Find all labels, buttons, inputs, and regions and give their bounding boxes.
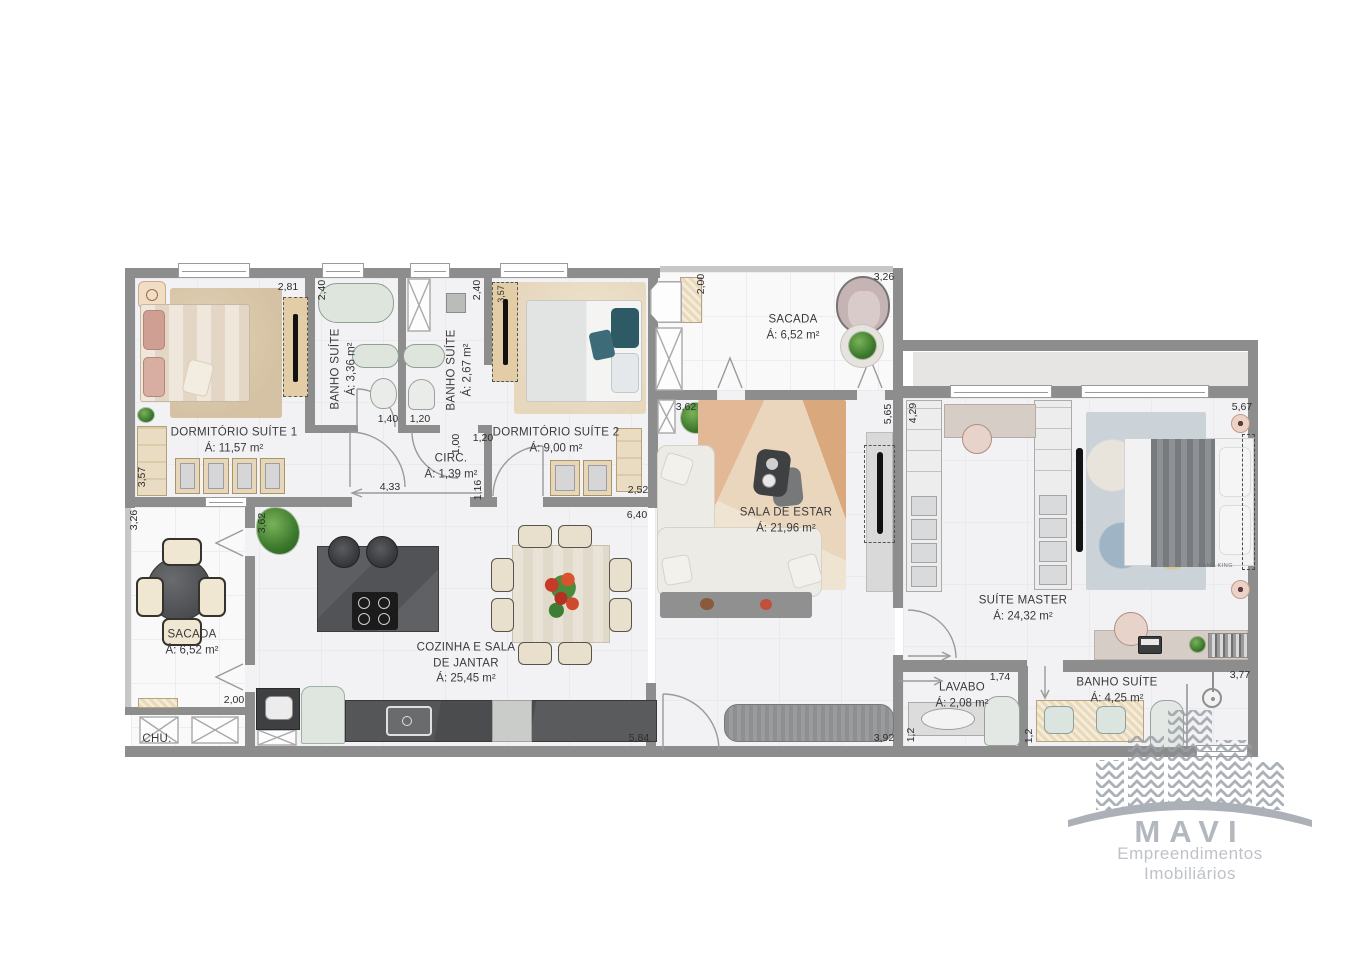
shower-icon	[446, 293, 466, 313]
room-area: Á: 21,96 m²	[740, 521, 833, 537]
sink-icon	[386, 706, 432, 736]
room-name: SACADA	[165, 627, 218, 643]
room-name: BANHO SUÍTE	[1076, 675, 1157, 691]
chair-icon	[198, 577, 226, 617]
dimension-label: 1,00	[450, 434, 462, 454]
room-area: Á: 6,52 m²	[766, 328, 819, 344]
dimension-label: 3,26	[128, 510, 140, 530]
bed-icon	[526, 300, 642, 402]
room-name: SUÍTE MASTER	[979, 593, 1068, 609]
plant-icon	[1190, 637, 1205, 652]
chair-icon	[962, 424, 992, 454]
room-name: SACADA	[766, 312, 819, 328]
burner	[358, 597, 370, 609]
dimension-label: 3,92	[874, 732, 894, 744]
wardrobe	[906, 400, 942, 592]
stool-icon	[366, 536, 398, 568]
stool-icon	[328, 536, 360, 568]
sofa-pillow	[661, 554, 693, 586]
wall-lamp-icon	[1231, 414, 1250, 433]
chair-icon	[491, 598, 514, 632]
bed-icon	[140, 304, 250, 402]
laptop-icon	[1138, 636, 1162, 654]
dimension-label: 2,40	[471, 280, 483, 300]
dimension-label: 1,40	[378, 413, 398, 425]
tv-icon	[503, 299, 508, 365]
brand-tagline: Empreendimentos Imobiliários	[1117, 844, 1262, 884]
room-area: Á: 9,00 m²	[493, 441, 620, 457]
room-label-banho1: BANHO SUÍTE Á: 3,36 m²	[328, 328, 359, 409]
crab-print	[700, 598, 714, 610]
tv-icon	[1076, 448, 1083, 552]
tub	[265, 696, 293, 720]
toilet-icon	[370, 378, 397, 409]
books-icon	[1208, 633, 1248, 658]
chair-icon	[162, 538, 202, 566]
tv-panel	[283, 297, 308, 397]
blanket	[1151, 439, 1215, 567]
throw-blanket	[181, 358, 214, 397]
dimension-label: 3,62	[256, 513, 268, 533]
pillow	[611, 353, 639, 393]
room-label-sacada-left: SACADA Á: 6,52 m²	[165, 627, 218, 658]
dresser	[175, 458, 285, 494]
laptop-screen	[1141, 639, 1159, 645]
headboard-panel	[1242, 434, 1255, 570]
plant-icon	[849, 332, 876, 359]
wall-lamp-icon	[1231, 580, 1250, 599]
burner	[378, 597, 390, 609]
bed-icon	[1124, 438, 1254, 566]
dimension-label: 1,2	[905, 728, 917, 743]
pillow	[143, 310, 165, 350]
entry-bench	[724, 704, 894, 742]
room-label-dorm2: DORMITÓRIO SUÍTE 2 Á: 9,00 m²	[493, 425, 620, 456]
dimension-label: 1,2	[1023, 729, 1035, 744]
dimension-label: 6,40	[627, 509, 647, 521]
dresser	[550, 460, 612, 496]
chair-icon	[558, 642, 592, 665]
dimension-label: 2,00	[695, 274, 707, 294]
room-area: Á: 25,45 m²	[417, 672, 516, 688]
wardrobe	[1034, 400, 1072, 590]
room-name: BANHO SUÍTE	[328, 328, 344, 409]
dimension-label: 3,26	[874, 271, 894, 283]
toilet-icon	[984, 696, 1020, 746]
balcony-sink	[650, 281, 682, 323]
bathtub-icon	[318, 283, 394, 323]
dimension-label: 5,84	[629, 732, 649, 744]
shower-ledge	[138, 698, 178, 708]
drain	[402, 716, 412, 726]
room-label-suite-master: SUÍTE MASTER Á: 24,32 m²	[979, 593, 1068, 624]
tv-icon	[293, 314, 298, 382]
room-label-sala: SALA DE ESTAR Á: 21,96 m²	[740, 505, 833, 536]
shower-stem	[1212, 672, 1214, 692]
decor	[765, 457, 778, 470]
burner	[378, 613, 390, 625]
room-area: Á: 2,08 m²	[935, 696, 988, 712]
dimension-label: 3,57	[496, 285, 506, 303]
dimension-label: 2,81	[278, 281, 298, 293]
room-label-circ: CIRC. Á: 1,39 m²	[424, 451, 477, 482]
tv-panel	[864, 445, 895, 543]
buildings-icon	[1060, 698, 1320, 828]
dimension-label: 5,65	[882, 404, 894, 424]
room-area: Á: 11,57 m²	[171, 441, 298, 457]
room-name: DORMITÓRIO SUÍTE 2	[493, 425, 620, 441]
appliance-icon	[492, 700, 532, 742]
dimension-label: 5,67	[1232, 401, 1252, 413]
room-name: LAVABO	[935, 680, 988, 696]
dimension-label: 3,77	[1230, 669, 1250, 681]
crab-print	[760, 599, 772, 610]
chair-icon	[136, 577, 164, 617]
washer-icon	[301, 686, 345, 744]
room-area: Á: 6,52 m²	[165, 643, 218, 659]
chair-icon	[609, 558, 632, 592]
dimension-label: 1,74	[990, 671, 1010, 683]
decor	[761, 473, 777, 489]
dimension-label: 1,20	[410, 413, 430, 425]
flower-centerpiece	[538, 566, 584, 620]
room-area: Á: 2,67 m²	[460, 329, 476, 410]
room-label-lavabo: LAVABO Á: 2,08 m²	[935, 680, 988, 711]
toilet-icon	[408, 379, 435, 410]
sink-counter	[403, 344, 445, 368]
plant-icon	[138, 408, 154, 422]
chair-icon	[491, 558, 514, 592]
chair-icon	[558, 525, 592, 548]
dimension-label: 3,57	[136, 467, 148, 487]
room-name: CHU.	[142, 732, 171, 748]
dimension-label: 4,33	[380, 481, 400, 493]
dimension-label: 3,62	[676, 401, 696, 413]
bed-tag-label: CAMA KING	[1198, 563, 1233, 569]
laundry-sink	[256, 688, 300, 730]
room-label-banho2: BANHO SUÍTE Á: 2,67 m²	[444, 329, 475, 410]
pillow	[143, 357, 165, 397]
dimension-label: 2,40	[316, 280, 328, 300]
room-area: Á: 3,36 m²	[344, 328, 360, 409]
room-label-dorm1: DORMITÓRIO SUÍTE 1 Á: 11,57 m²	[171, 425, 298, 456]
room-label-sacada-top: SACADA Á: 6,52 m²	[766, 312, 819, 343]
dimension-label: 2,00	[224, 694, 244, 706]
cooktop-icon	[352, 592, 398, 630]
room-name: DE JANTAR	[417, 656, 516, 672]
floor-plan: CAMA KING	[0, 0, 1359, 960]
chair-icon	[518, 642, 552, 665]
burner	[358, 613, 370, 625]
room-area: Á: 1,39 m²	[424, 467, 477, 483]
coffee-table	[752, 448, 791, 498]
dimension-label: 1,20	[473, 432, 493, 444]
dimension-label: 1,16	[472, 480, 484, 500]
doormat	[660, 592, 812, 618]
room-name: DORMITÓRIO SUÍTE 1	[171, 425, 298, 441]
watermark-logo: MAVI Empreendimentos Imobiliários	[1060, 698, 1320, 863]
chair-icon	[609, 598, 632, 632]
dimension-label: 4,29	[907, 403, 919, 423]
chair-icon	[518, 525, 552, 548]
pillow	[611, 308, 639, 348]
dimension-label: 2,52	[628, 484, 648, 496]
tv-icon	[877, 452, 883, 534]
room-label-cozinha: COZINHA E SALA DE JANTAR Á: 25,45 m²	[417, 641, 516, 688]
room-name: COZINHA E SALA	[417, 641, 516, 657]
wardrobe	[616, 428, 642, 492]
room-label-chu: CHU.	[142, 732, 171, 748]
room-name: SALA DE ESTAR	[740, 505, 833, 521]
room-name: BANHO SUÍTE	[444, 329, 460, 410]
room-area: Á: 24,32 m²	[979, 609, 1068, 625]
